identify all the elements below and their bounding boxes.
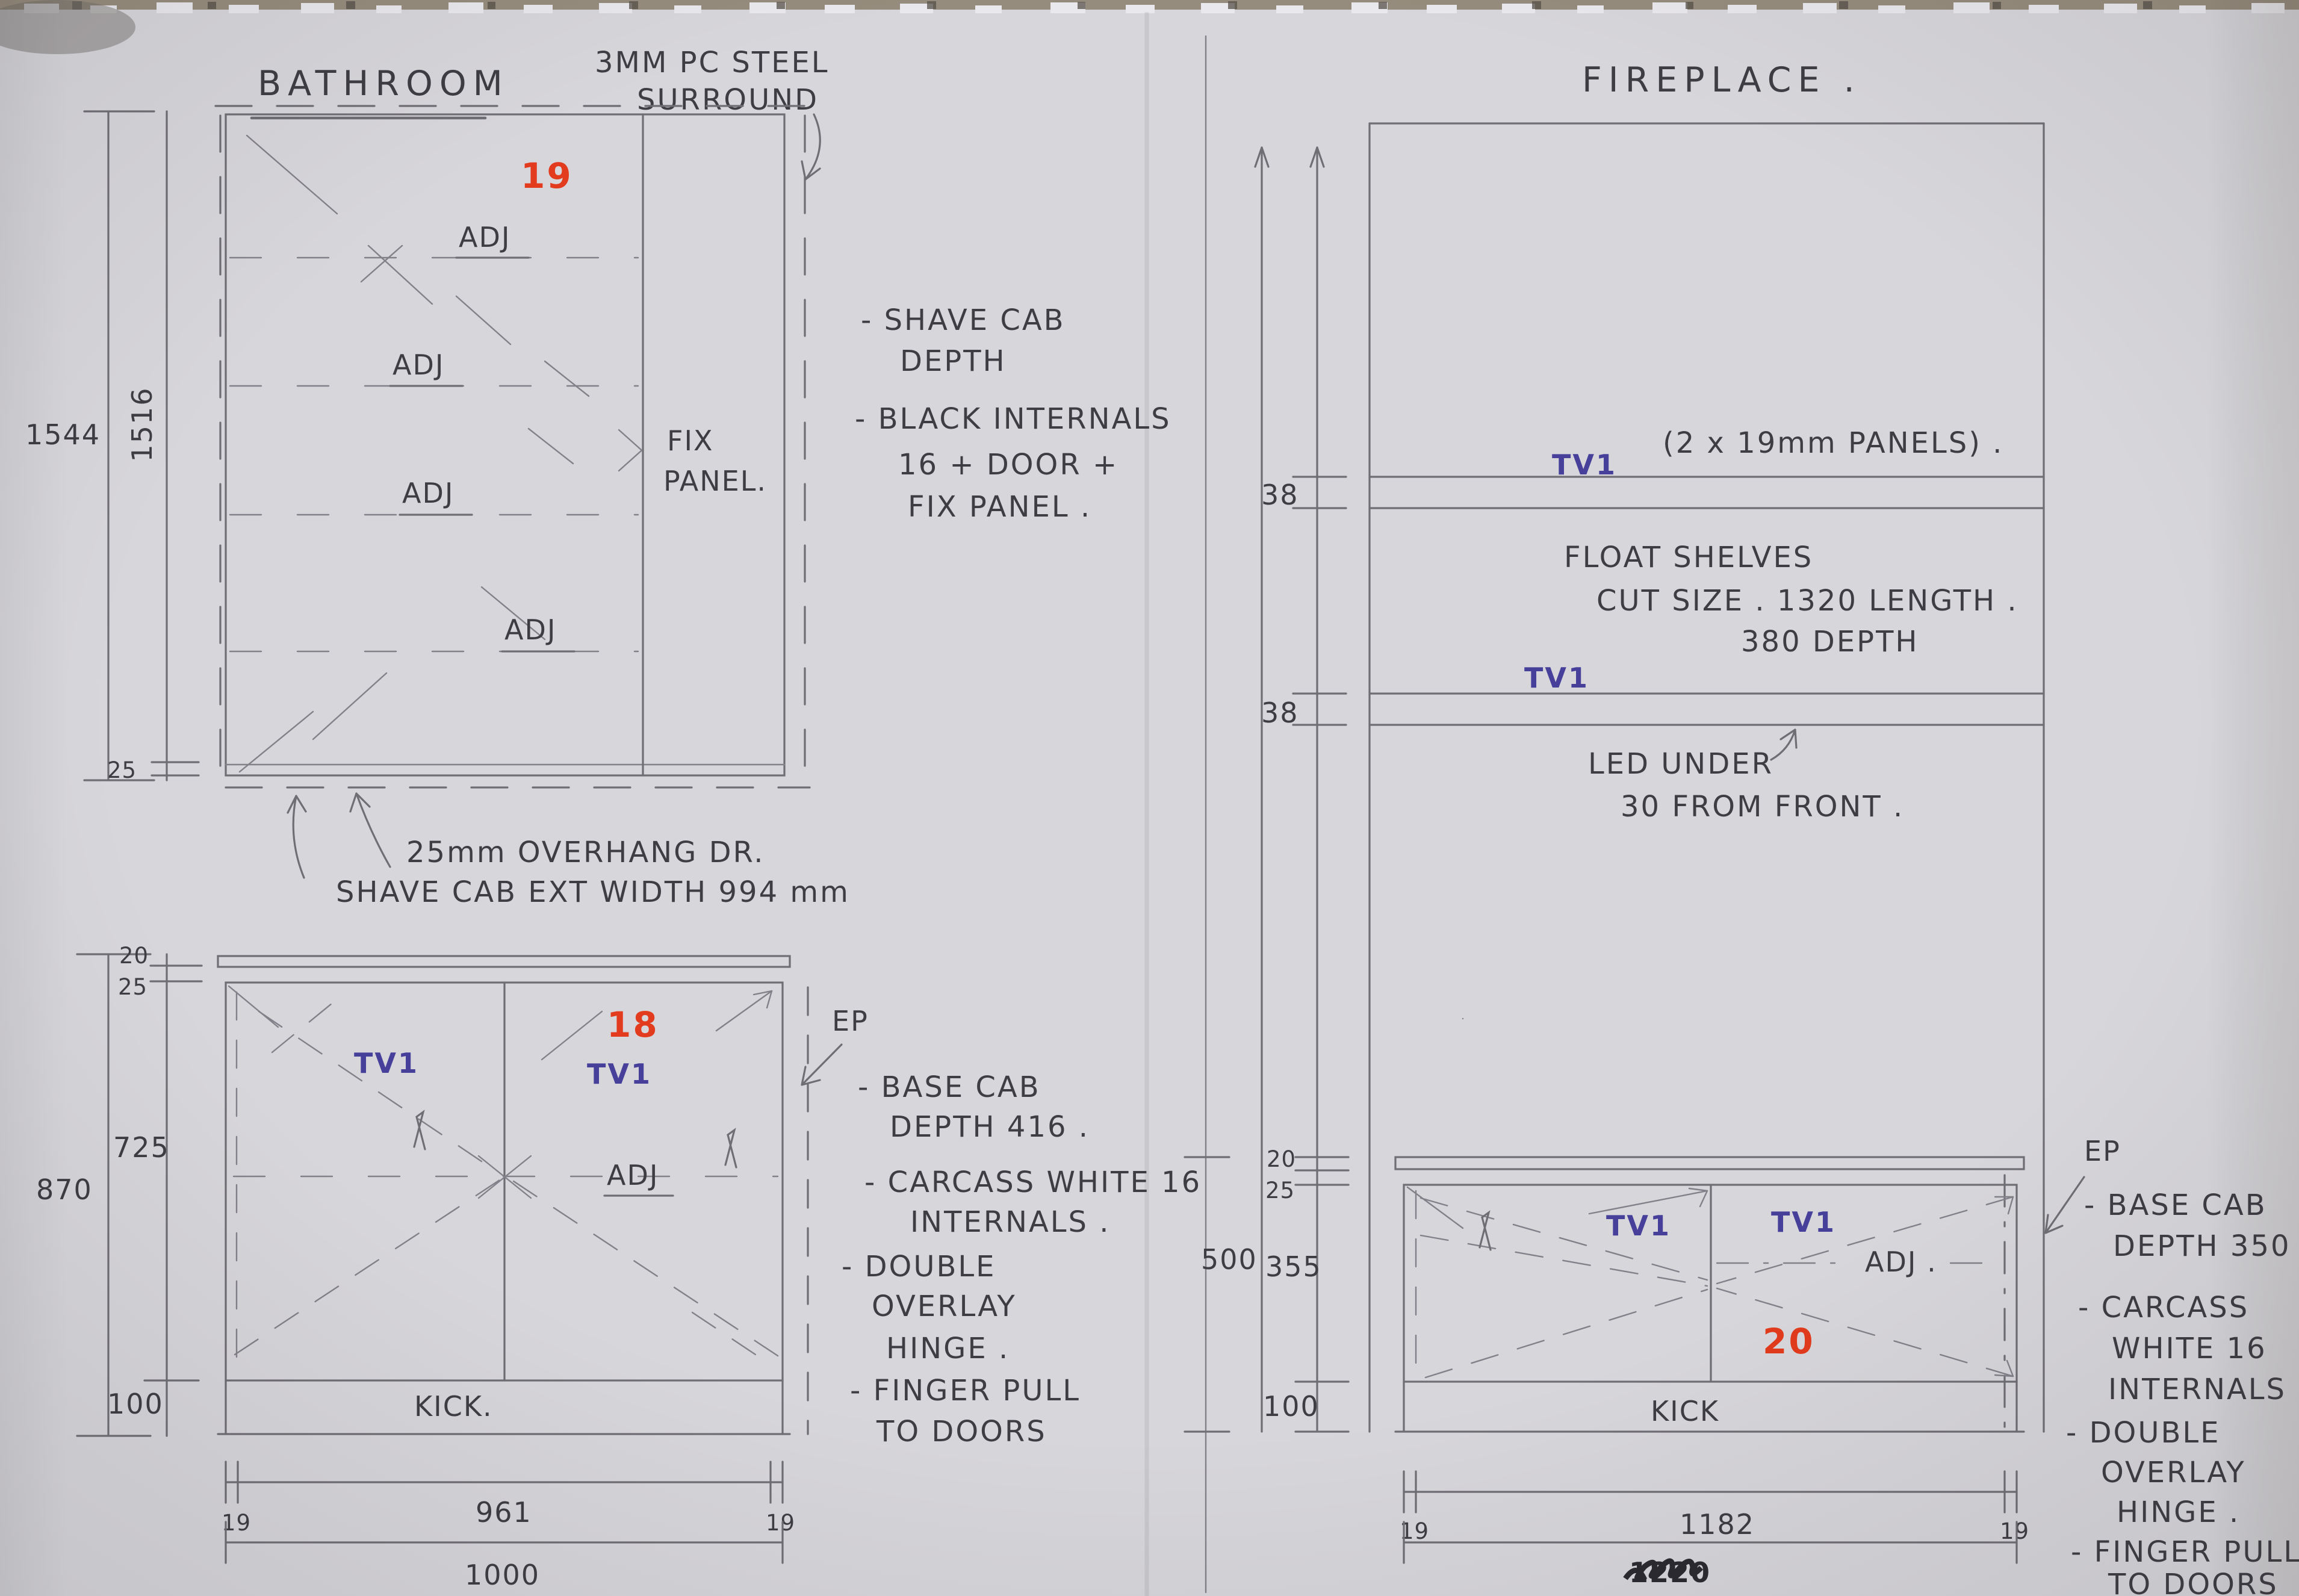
cabinet-sketch-svg: BATHROOM 3MM PC STEEL SURROUND: [0, 0, 2299, 1596]
vignette-overlay: [0, 0, 2299, 1596]
sketch-page: BATHROOM 3MM PC STEEL SURROUND: [0, 0, 2299, 1596]
